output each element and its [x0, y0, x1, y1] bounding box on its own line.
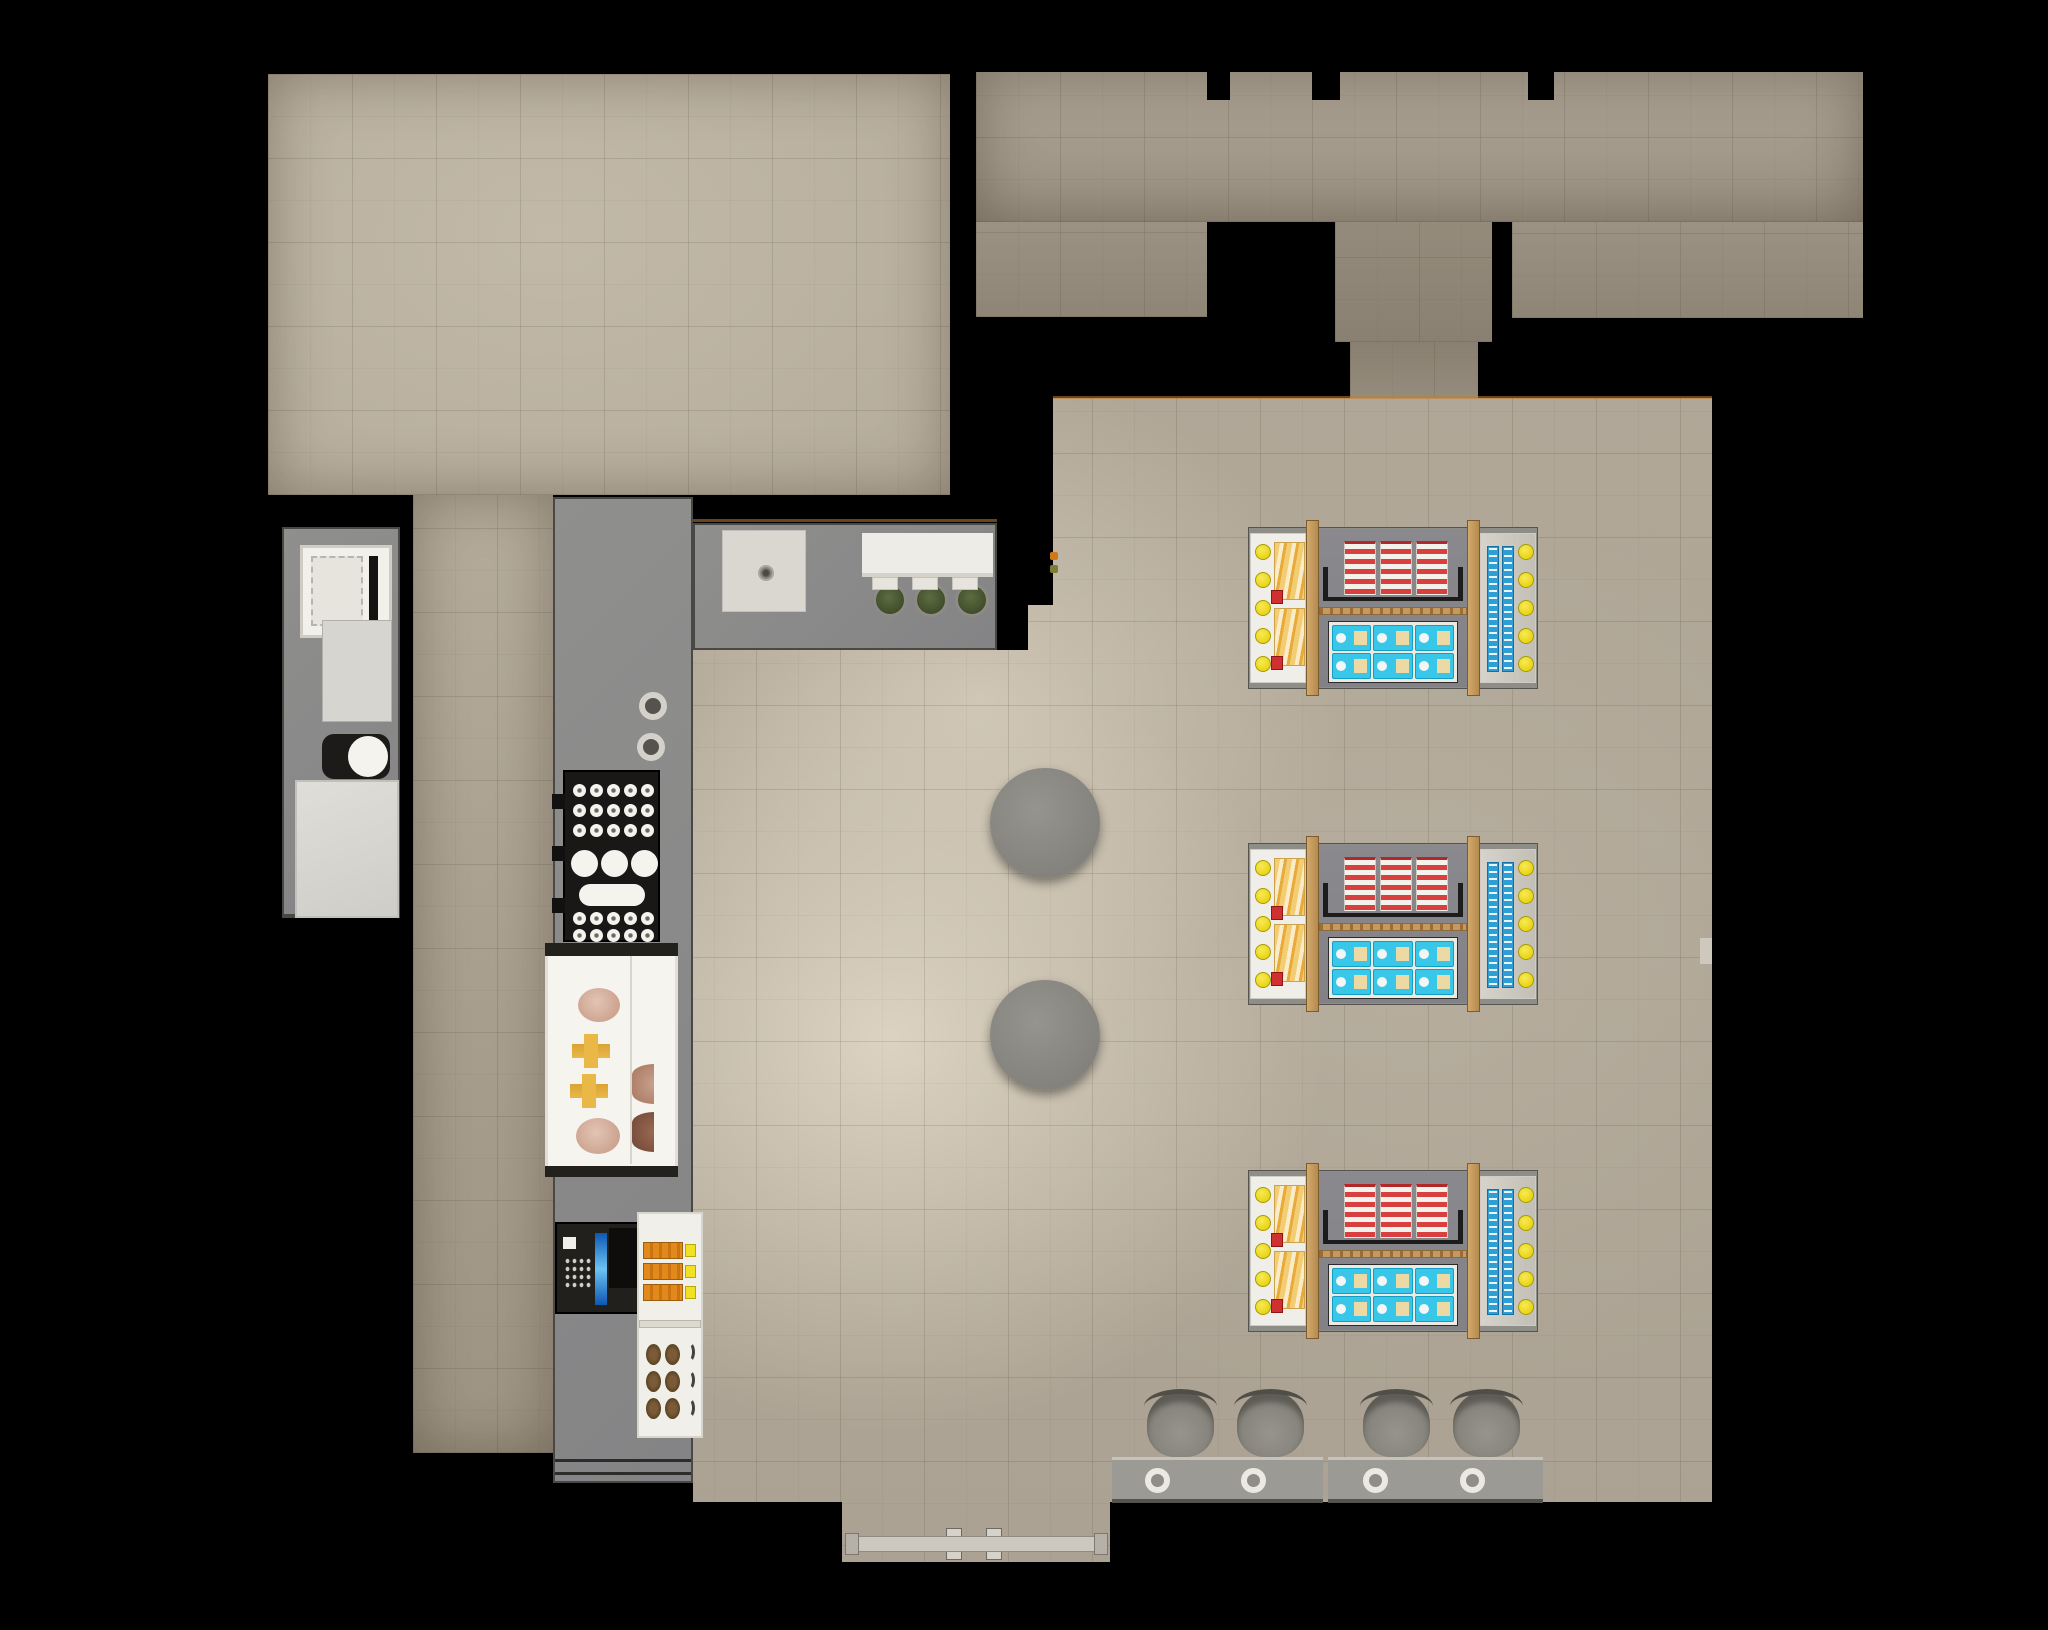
red-striped-boxes: [1416, 541, 1448, 595]
red-striped-boxes: [1416, 857, 1448, 911]
red-striped-boxes: [1380, 1184, 1412, 1238]
cup: [641, 912, 654, 925]
croissant: [646, 1371, 661, 1392]
wall-notch: [1528, 72, 1554, 100]
serving-dish: [579, 884, 645, 906]
yellow-item: [1518, 572, 1534, 588]
pos-keypad: [564, 1257, 592, 1289]
cup: [624, 784, 637, 797]
shelf-bracket: [1458, 883, 1463, 915]
large-cup: [571, 850, 598, 877]
red-label: [1271, 906, 1283, 920]
yellow-item: [1518, 1243, 1534, 1259]
snack-shelf-unit: [637, 1212, 703, 1438]
door-post: [845, 1533, 859, 1555]
cyan-pack: [1373, 1268, 1412, 1294]
cup: [641, 804, 654, 817]
gondola-center: [1319, 529, 1467, 687]
yellow-item: [1518, 628, 1534, 644]
cup: [590, 824, 603, 837]
shelf-edge: [1323, 597, 1463, 601]
burner: [639, 692, 667, 720]
yellow-cap: [685, 1265, 696, 1278]
rack-wave: [683, 1398, 695, 1418]
edge-marker-olive: [1050, 565, 1058, 573]
lower-shelf: [1328, 1264, 1458, 1326]
back-counter-shelf: [862, 533, 993, 577]
drain-icon: [758, 565, 774, 581]
yellow-item: [1255, 1215, 1271, 1231]
cup: [624, 804, 637, 817]
tray-handle: [552, 898, 565, 913]
table-ring: [1145, 1468, 1170, 1493]
cyan-pack: [1415, 625, 1454, 651]
cyan-pack: [1373, 653, 1412, 679]
croissant: [665, 1344, 680, 1365]
chair: [1453, 1391, 1520, 1457]
yellow-item: [1255, 1243, 1271, 1259]
pos-terminal: [555, 1222, 639, 1314]
cyan-pack: [1332, 941, 1371, 967]
appliance-panel: [311, 556, 363, 626]
cup: [607, 929, 620, 942]
cup: [641, 929, 654, 942]
pos-chip: [563, 1237, 576, 1249]
wall-fixture-right: [1700, 938, 1712, 964]
orange-pack: [643, 1263, 683, 1280]
red-striped-boxes: [1380, 541, 1412, 595]
red-striped-boxes: [1344, 1184, 1376, 1238]
cup: [590, 912, 603, 925]
cup: [590, 804, 603, 817]
gondola-center: [1319, 845, 1467, 1003]
yellow-item: [1255, 1271, 1271, 1287]
gondola-shelving-1: [1248, 527, 1538, 689]
cup: [573, 824, 586, 837]
bar-table: [1328, 1457, 1543, 1503]
large-cup: [601, 850, 628, 877]
wood-post: [1467, 1163, 1480, 1339]
orange-pack: [643, 1284, 683, 1301]
yellow-item: [1255, 572, 1271, 588]
blue-bottle-pack: [1502, 546, 1514, 672]
yellow-item: [1255, 1187, 1271, 1203]
red-striped-boxes: [1416, 1184, 1448, 1238]
shelf-divider: [639, 1320, 701, 1328]
yellow-item: [1518, 656, 1534, 672]
shelf-bracket: [1458, 1210, 1463, 1242]
cyan-pack: [1332, 1268, 1371, 1294]
yellow-item: [1518, 916, 1534, 932]
chair: [1237, 1391, 1304, 1457]
red-striped-boxes: [1344, 857, 1376, 911]
gondola-endcap-right: [1480, 533, 1536, 683]
kitchen-corridor-floor: [413, 495, 553, 1453]
wood-rail: [1319, 1250, 1467, 1258]
gondola-endcap-left: [1250, 1176, 1306, 1326]
cyan-pack: [1415, 1268, 1454, 1294]
lower-shelf: [1328, 621, 1458, 683]
table-ring: [1460, 1468, 1485, 1493]
red-striped-boxes: [1380, 857, 1412, 911]
gondola-shelving-2: [1248, 843, 1538, 1005]
pos-hood: [609, 1228, 637, 1288]
cup: [624, 824, 637, 837]
yellow-item: [1518, 1187, 1534, 1203]
shelf-tab: [912, 577, 938, 590]
yellow-item: [1518, 544, 1534, 560]
croissant: [646, 1398, 661, 1419]
gondola-endcap-left: [1250, 533, 1306, 683]
chair: [1147, 1391, 1214, 1457]
red-label: [1271, 1299, 1283, 1313]
wood-post: [1306, 836, 1319, 1012]
case-frame: [545, 1166, 678, 1177]
rack-wave: [683, 1370, 695, 1390]
pink-plate: [576, 1118, 620, 1154]
yellow-item: [1255, 656, 1271, 672]
cup-tray: [563, 770, 660, 942]
back-corridor-narrow: [1350, 342, 1478, 400]
cup: [590, 929, 603, 942]
round-table: [990, 768, 1100, 878]
yellow-item: [1255, 972, 1271, 988]
table-ring: [1363, 1468, 1388, 1493]
blue-bottle-pack: [1502, 862, 1514, 988]
prep-box: [322, 620, 392, 722]
mixer-bowl: [348, 736, 388, 777]
large-cup: [631, 850, 658, 877]
cup: [641, 784, 654, 797]
cyan-pack: [1415, 941, 1454, 967]
cyan-pack: [1415, 653, 1454, 679]
shelf-bracket: [1458, 567, 1463, 599]
wall-notch: [1312, 72, 1340, 100]
yellow-item: [1255, 944, 1271, 960]
cyan-pack: [1415, 1296, 1454, 1322]
blue-bottle-pack: [1487, 862, 1499, 988]
yellow-item: [1518, 600, 1534, 616]
tray-handle: [552, 794, 565, 809]
cup: [607, 824, 620, 837]
cyan-pack: [1373, 625, 1412, 651]
shelf-tab: [872, 577, 898, 590]
yellow-item: [1255, 916, 1271, 932]
yellow-cap: [685, 1286, 696, 1299]
top-right-room-lower-left: [976, 222, 1207, 317]
cyan-pack: [1332, 969, 1371, 995]
appliance-vent-slot: [369, 556, 378, 626]
cyan-pack: [1332, 625, 1371, 651]
shelf-bracket: [1323, 1210, 1328, 1242]
cup: [607, 804, 620, 817]
top-left-room-floor: [268, 74, 950, 495]
cyan-pack: [1373, 969, 1412, 995]
cup: [573, 784, 586, 797]
round-table: [990, 980, 1100, 1090]
cyan-pack: [1332, 653, 1371, 679]
croissant: [665, 1398, 680, 1419]
cup: [641, 824, 654, 837]
wood-rail: [1319, 923, 1467, 931]
yellow-item: [1518, 1271, 1534, 1287]
cup: [607, 912, 620, 925]
cyan-pack: [1332, 1296, 1371, 1322]
orange-pack: [643, 1242, 683, 1259]
wood-post: [1306, 520, 1319, 696]
pastry-display-case: [545, 943, 678, 1177]
cyan-pack: [1415, 969, 1454, 995]
worktop-cabinet: [295, 780, 399, 918]
cup: [624, 912, 637, 925]
yellow-item: [1255, 888, 1271, 904]
stand-mixer: [322, 734, 390, 779]
yellow-item: [1255, 860, 1271, 876]
yellow-item: [1255, 1299, 1271, 1315]
pos-screen: [595, 1233, 607, 1305]
counter-edge-accent: [693, 519, 997, 522]
gondola-center: [1319, 1172, 1467, 1330]
side-plate: [632, 1064, 654, 1104]
red-label: [1271, 656, 1283, 670]
burner: [637, 733, 665, 761]
cup: [590, 784, 603, 797]
gondola-endcap-left: [1250, 849, 1306, 999]
shelf-edge: [1323, 913, 1463, 917]
cyan-pack: [1373, 941, 1412, 967]
rack-wave: [683, 1342, 695, 1362]
wood-rail: [1319, 607, 1467, 615]
yellow-pastry: [570, 1074, 608, 1110]
gondola-endcap-right: [1480, 849, 1536, 999]
cup: [573, 929, 586, 942]
gondola-endcap-right: [1480, 1176, 1536, 1326]
yellow-item: [1255, 544, 1271, 560]
shelf-edge: [1323, 1240, 1463, 1244]
cup: [573, 804, 586, 817]
cup: [573, 912, 586, 925]
edge-marker-orange: [1050, 552, 1058, 560]
cup: [607, 784, 620, 797]
wood-post: [1467, 836, 1480, 1012]
blue-bottle-pack: [1502, 1189, 1514, 1315]
wall-notch: [1207, 72, 1230, 100]
pink-plate: [578, 988, 620, 1022]
yellow-item: [1518, 1215, 1534, 1231]
wood-post: [1306, 1163, 1319, 1339]
case-frame: [545, 943, 678, 956]
top-right-room-lower-right: [1512, 222, 1863, 318]
croissant: [665, 1371, 680, 1392]
chair: [1363, 1391, 1430, 1457]
yellow-item: [1255, 628, 1271, 644]
croissant: [646, 1344, 661, 1365]
back-corridor-wide: [1335, 222, 1492, 342]
yellow-item: [1518, 888, 1534, 904]
cyan-pack: [1373, 1296, 1412, 1322]
gondola-shelving-3: [1248, 1170, 1538, 1332]
red-label: [1271, 590, 1283, 604]
wall-edge-accent: [1053, 396, 1712, 399]
sink-drain-board: [722, 530, 806, 612]
bar-table: [1112, 1457, 1323, 1503]
yellow-cap: [685, 1244, 696, 1257]
yellow-item: [1518, 860, 1534, 876]
red-label: [1271, 1233, 1283, 1247]
yellow-item: [1255, 600, 1271, 616]
entrance-door-rail: [845, 1536, 1108, 1552]
blue-bottle-pack: [1487, 546, 1499, 672]
door-post: [1094, 1533, 1108, 1555]
blue-bottle-pack: [1487, 1189, 1499, 1315]
yellow-item: [1518, 972, 1534, 988]
red-striped-boxes: [1344, 541, 1376, 595]
red-label: [1271, 972, 1283, 986]
top-right-room-floor: [976, 72, 1863, 222]
cup: [624, 929, 637, 942]
shelf-bracket: [1323, 567, 1328, 599]
shelf-bracket: [1323, 883, 1328, 915]
tray-handle: [552, 846, 565, 861]
yellow-item: [1518, 1299, 1534, 1315]
shelf-tab: [952, 577, 978, 590]
wood-post: [1467, 520, 1480, 696]
side-plate: [632, 1112, 654, 1152]
yellow-item: [1518, 944, 1534, 960]
floor-plan-canvas: [0, 0, 2048, 1630]
yellow-pastry: [572, 1034, 610, 1068]
table-ring: [1241, 1468, 1266, 1493]
lower-shelf: [1328, 937, 1458, 999]
